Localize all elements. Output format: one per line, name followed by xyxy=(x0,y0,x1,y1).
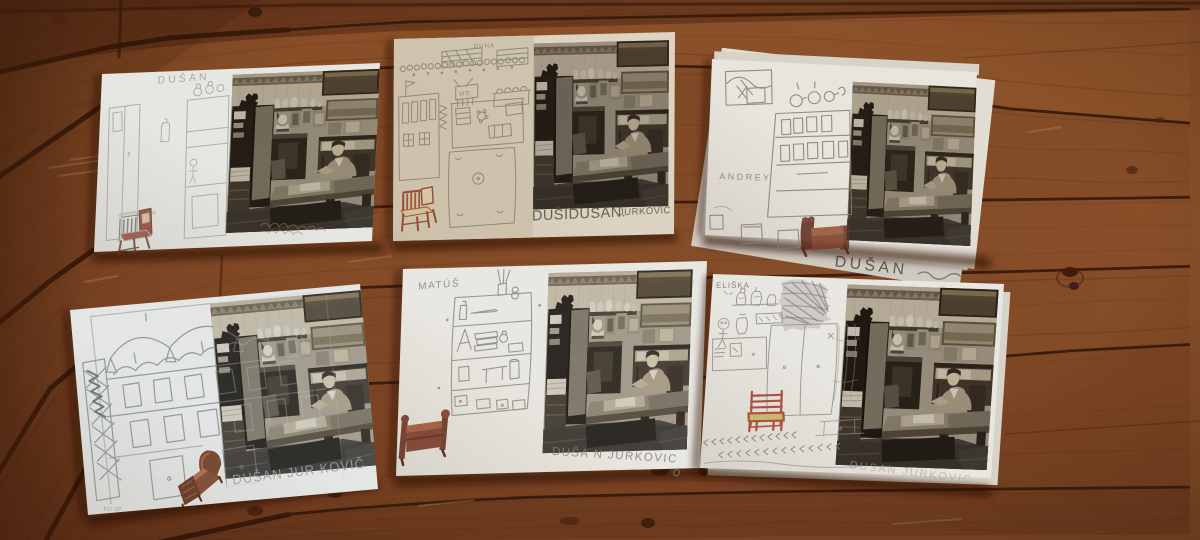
svg-text:ANDREY: ANDREY xyxy=(719,171,772,183)
svg-text:VITI: VITI xyxy=(459,91,470,97)
svg-text:JURKOVIC: JURKOVIC xyxy=(619,205,671,218)
svg-text:611 SP: 611 SP xyxy=(104,506,122,512)
svg-text:DUHA: DUHA xyxy=(474,44,495,51)
